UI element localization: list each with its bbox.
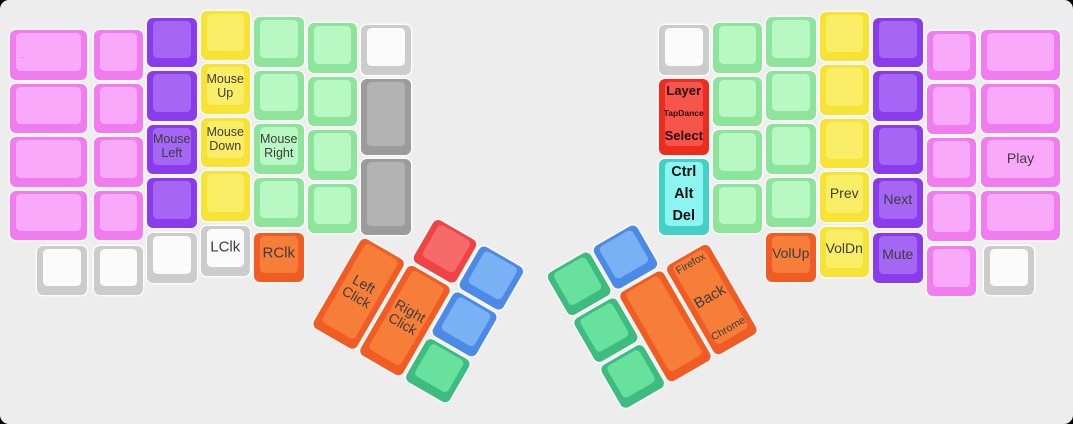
key-left-bottom-1[interactable]: [37, 246, 87, 296]
key-volup-label: VolUp: [767, 246, 815, 262]
key-left-c6-r3[interactable]: [308, 130, 358, 180]
key-mute-cap: Mute: [879, 236, 917, 274]
key-left-c3-r4-cap: [153, 181, 191, 219]
key-left-bottom-3[interactable]: [147, 233, 197, 283]
key-left-c5-r1[interactable]: [254, 17, 304, 67]
key-rthumb-green2-cap: [578, 302, 629, 353]
key-right-c3-r2-cap: [772, 74, 810, 112]
key-left-c6-r4-cap: [314, 187, 352, 225]
key-right-c4-r2[interactable]: [820, 65, 870, 115]
key-left-c6-r2[interactable]: [308, 77, 358, 127]
key-right-c6-r3[interactable]: [927, 138, 977, 188]
key-right-c3-r3-cap: [772, 127, 810, 165]
key-left-c7-tall2-cap: [367, 162, 405, 226]
key-left-c6-r3-cap: [314, 133, 352, 171]
key-lthumb-red-cap: [421, 223, 472, 274]
key-right-c2-r4[interactable]: [713, 184, 763, 234]
key-left-c2-r3[interactable]: [94, 137, 144, 187]
key-left-c2-r1[interactable]: [94, 30, 144, 80]
key-right-c6-r4[interactable]: [927, 191, 977, 241]
key-firefox-back-chrome-label: Back: [685, 278, 735, 316]
key-lclk-cap: LClk: [207, 229, 245, 267]
key-left-c2-r2[interactable]: [94, 84, 144, 134]
key-mouse-down-label: Mouse Down: [202, 125, 250, 153]
key-left-c1-r1-cap: .: [16, 33, 81, 71]
key-left-c3-r1-cap: [153, 21, 191, 59]
key-right-c2-r1[interactable]: [713, 23, 763, 73]
key-left-bottom-1-cap: [43, 249, 81, 287]
key-right-c2-r2-cap: [719, 80, 757, 118]
key-right-c3-r1-cap: [772, 20, 810, 58]
key-right-c3-r4-cap: [772, 181, 810, 219]
key-right-bottom-white-cap: [990, 249, 1028, 287]
key-lthumb-blue1-cap: [467, 249, 518, 300]
key-right-c4-r3[interactable]: [820, 119, 870, 169]
key-right-bottom-pink[interactable]: [927, 246, 977, 296]
key-left-c5-r1-cap: [260, 20, 298, 58]
key-firefox-back-chrome-label: Chrome: [705, 313, 752, 347]
key-lclk[interactable]: LClk: [201, 226, 251, 276]
key-lclk-label: LClk: [202, 239, 250, 256]
key-mouse-up-cap: Mouse Up: [207, 67, 245, 105]
key-right-c2-r3[interactable]: [713, 130, 763, 180]
key-right-c6-r2[interactable]: [927, 84, 977, 134]
key-layer-tapdance-select-label: TapDance: [660, 109, 708, 119]
key-rthumb-green3-cap: [605, 348, 656, 399]
key-prev-label: Prev: [821, 186, 869, 202]
key-layer-tapdance-select[interactable]: LayerTapDanceSelect: [659, 79, 709, 155]
key-left-c1-r2[interactable]: [10, 84, 87, 134]
key-right-c7-r4-cap: [987, 194, 1054, 232]
key-left-c4-r1[interactable]: [201, 11, 251, 61]
key-voldn-cap: VolDn: [826, 230, 864, 268]
key-left-c3-r1[interactable]: [147, 18, 197, 68]
keyboard-canvas: .Mouse LeftMouse UpMouse DownMouse Right…: [0, 0, 1073, 424]
key-left-c6-r2-cap: [314, 80, 352, 118]
key-rclk[interactable]: RClk: [254, 233, 304, 283]
key-right-c7-r2[interactable]: [981, 84, 1060, 134]
key-play-label: Play: [982, 151, 1059, 167]
key-right-bottom-pink-cap: [933, 249, 971, 287]
key-mouse-up-label: Mouse Up: [202, 72, 250, 100]
key-right-c2-r4-cap: [719, 187, 757, 225]
key-ctrl-alt-del-label: Alt: [660, 186, 708, 202]
key-right-c4-r1[interactable]: [820, 12, 870, 62]
key-mouse-up[interactable]: Mouse Up: [201, 64, 251, 114]
key-right-bottom-white[interactable]: [984, 246, 1034, 296]
key-left-bottom-2[interactable]: [94, 246, 144, 296]
key-mouse-right[interactable]: Mouse Right: [254, 124, 304, 174]
key-right-c6-r1-cap: [933, 34, 971, 72]
key-right-c7-r2-cap: [987, 87, 1054, 125]
key-play[interactable]: Play: [981, 137, 1060, 187]
key-left-c1-r4-cap: [16, 194, 81, 232]
key-layer-tapdance-select-label: Layer: [660, 84, 708, 99]
key-play-cap: Play: [987, 140, 1054, 178]
key-rthumb-blue-cap: [598, 229, 649, 280]
key-left-c2-r2-cap: [100, 87, 138, 125]
key-mouse-left[interactable]: Mouse Left: [147, 125, 197, 175]
key-left-c7-tall1-cap: [367, 82, 405, 146]
key-right-click-label: Right Click: [378, 292, 435, 343]
key-left-c1-r3-cap: [16, 140, 81, 178]
key-mute-label: Mute: [874, 247, 922, 263]
key-mouse-down[interactable]: Mouse Down: [201, 118, 251, 168]
key-left-c5-r4-cap: [260, 181, 298, 219]
key-right-c5-r3[interactable]: [873, 125, 923, 175]
key-mute[interactable]: Mute: [873, 233, 923, 283]
key-left-c4-r4[interactable]: [201, 171, 251, 221]
key-left-c2-r1-cap: [100, 33, 138, 71]
key-right-c7-r1[interactable]: [981, 30, 1060, 80]
key-left-c6-r1[interactable]: [308, 23, 358, 73]
key-mouse-right-label: Mouse Right: [255, 132, 303, 160]
key-rclk-cap: RClk: [260, 236, 298, 274]
key-left-c7-r1-cap: [367, 28, 405, 66]
key-right-c3-r2[interactable]: [766, 71, 816, 121]
key-lthumb-green-cap: [414, 342, 465, 393]
key-mouse-down-cap: Mouse Down: [207, 121, 245, 159]
key-right-c5-r1-cap: [879, 21, 917, 59]
key-left-click-label: Left Click: [332, 266, 389, 317]
key-left-c6-r4[interactable]: [308, 184, 358, 234]
key-right-c2-r1-cap: [719, 26, 757, 64]
key-volup[interactable]: VolUp: [766, 233, 816, 283]
key-ctrl-alt-del-cap: CtrlAltDel: [665, 162, 703, 226]
key-mouse-left-cap: Mouse Left: [153, 128, 191, 166]
key-volup-cap: VolUp: [772, 236, 810, 274]
key-layer-tapdance-select-label: Select: [660, 129, 708, 144]
key-left-c2-r3-cap: [100, 140, 138, 178]
key-mouse-left-label: Mouse Left: [148, 132, 196, 160]
key-lthumb-blue2-cap: [440, 296, 491, 347]
key-next-label: Next: [874, 192, 922, 208]
key-prev[interactable]: Prev: [820, 172, 870, 222]
key-left-c7-tall2[interactable]: [361, 159, 411, 235]
key-right-c7-r4[interactable]: [981, 191, 1060, 241]
key-left-c2-r4[interactable]: [94, 191, 144, 241]
key-left-c1-r2-cap: [16, 87, 81, 125]
key-right-c5-r1[interactable]: [873, 18, 923, 68]
key-left-c3-r2-cap: [153, 74, 191, 112]
key-firefox-back-chrome-label: Firefox: [668, 248, 715, 282]
key-ctrl-alt-del-label: Del: [660, 208, 708, 224]
key-left-c6-r1-cap: [314, 26, 352, 64]
key-voldn[interactable]: VolDn: [820, 227, 870, 277]
key-right-c1-r1-cap: [665, 28, 703, 66]
key-left-c1-r1[interactable]: .: [10, 30, 87, 80]
key-prev-cap: Prev: [826, 175, 864, 213]
key-left-bottom-3-cap: [153, 236, 191, 274]
key-right-c7-r1-cap: [987, 33, 1054, 71]
key-left-bottom-2-cap: [100, 249, 138, 287]
key-right-c6-r1[interactable]: [927, 31, 977, 81]
key-rclk-label: RClk: [255, 246, 303, 263]
key-right-c4-r3-cap: [826, 122, 864, 160]
key-left-c5-r2[interactable]: [254, 71, 304, 121]
key-right-c5-r3-cap: [879, 128, 917, 166]
key-right-c6-r2-cap: [933, 87, 971, 125]
key-right-c2-r2[interactable]: [713, 77, 763, 127]
key-left-c4-r4-cap: [207, 174, 245, 212]
key-left-c3-r2[interactable]: [147, 71, 197, 121]
key-left-c1-r1-label: .: [21, 53, 23, 61]
key-rthumb-green1-cap: [552, 255, 603, 306]
key-left-c3-r4[interactable]: [147, 178, 197, 228]
key-left-c2-r4-cap: [100, 194, 138, 232]
key-right-c2-r3-cap: [719, 133, 757, 171]
key-left-c5-r2-cap: [260, 74, 298, 112]
key-right-c6-r4-cap: [933, 194, 971, 232]
key-right-c5-r2[interactable]: [873, 71, 923, 121]
key-left-c7-tall1[interactable]: [361, 79, 411, 155]
key-right-c3-r4[interactable]: [766, 178, 816, 228]
key-mouse-right-cap: Mouse Right: [260, 127, 298, 165]
key-right-c5-r2-cap: [879, 74, 917, 112]
key-ctrl-alt-del[interactable]: CtrlAltDel: [659, 159, 709, 235]
key-right-c4-r2-cap: [826, 68, 864, 106]
key-left-c1-r3[interactable]: [10, 137, 87, 187]
key-ctrl-alt-del-label: Ctrl: [660, 164, 708, 180]
key-voldn-label: VolDn: [821, 241, 869, 257]
key-right-c1-r1[interactable]: [659, 25, 709, 75]
key-right-c6-r3-cap: [933, 141, 971, 179]
key-left-c1-r4[interactable]: [10, 191, 87, 241]
key-left-c5-r4[interactable]: [254, 178, 304, 228]
key-next-cap: Next: [879, 181, 917, 219]
key-layer-tapdance-select-cap: LayerTapDanceSelect: [665, 82, 703, 146]
key-left-c7-r1[interactable]: [361, 25, 411, 75]
key-right-c3-r3[interactable]: [766, 124, 816, 174]
key-left-c4-r1-cap: [207, 14, 245, 52]
key-next[interactable]: Next: [873, 178, 923, 228]
key-right-c4-r1-cap: [826, 15, 864, 53]
key-right-c3-r1[interactable]: [766, 17, 816, 67]
